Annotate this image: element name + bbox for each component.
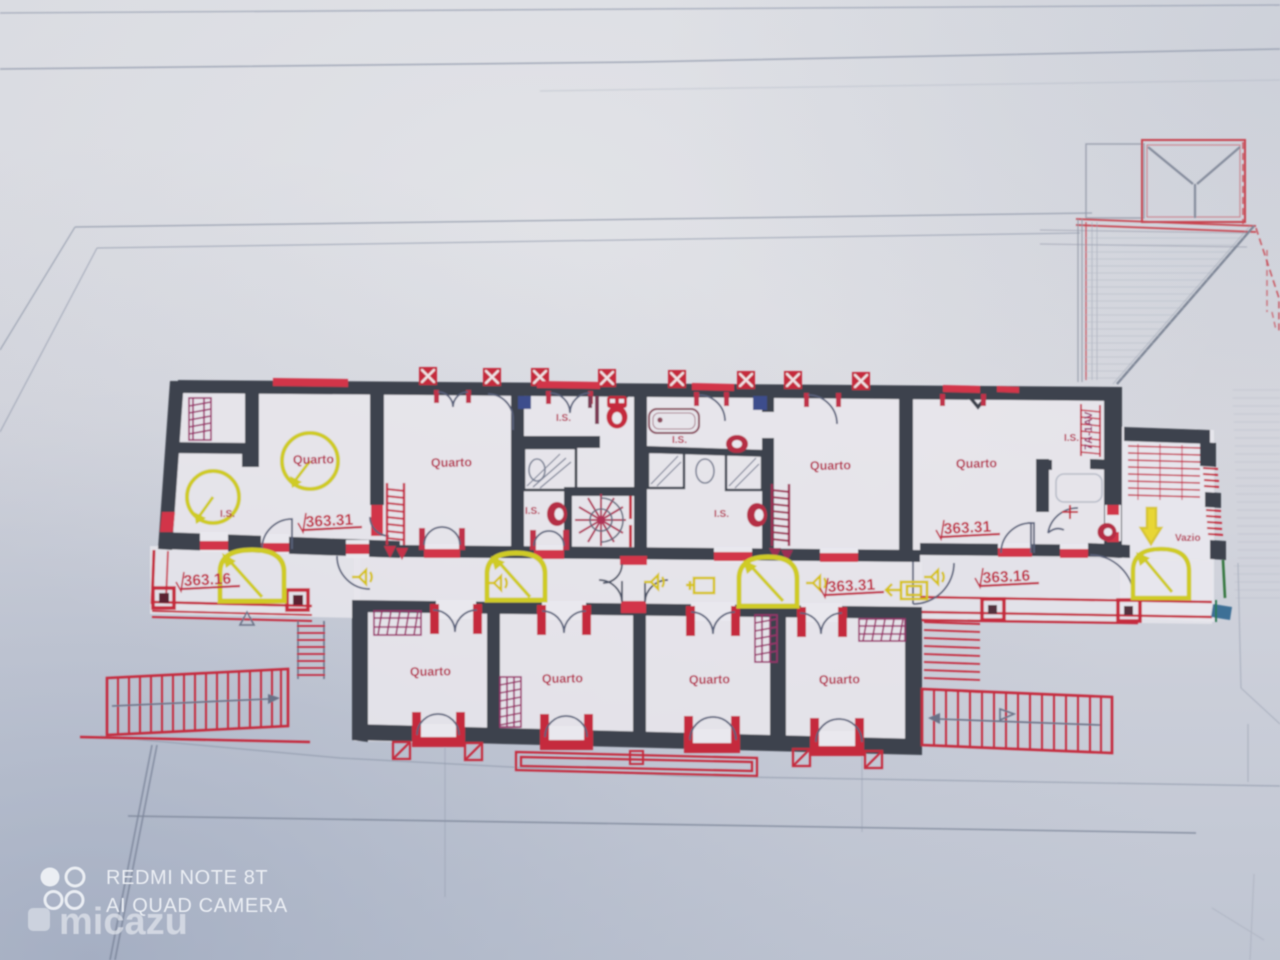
svg-text:micazu: micazu	[59, 901, 188, 943]
svg-text:Quarto: Quarto	[542, 671, 584, 686]
svg-text:I.S.: I.S.	[556, 413, 571, 424]
svg-text:Quarto: Quarto	[431, 455, 473, 470]
svg-text:Quarto: Quarto	[689, 672, 731, 687]
svg-text:Quarto: Quarto	[293, 452, 335, 467]
svg-text:I.S.: I.S.	[220, 509, 235, 520]
svg-text:Quarto: Quarto	[410, 664, 452, 679]
svg-text:I.S.: I.S.	[672, 435, 687, 446]
svg-text:REDMI NOTE 8T: REDMI NOTE 8T	[106, 867, 268, 889]
svg-text:I.S.: I.S.	[714, 509, 729, 520]
svg-text:Quarto: Quarto	[819, 672, 861, 687]
svg-text:Quarto: Quarto	[956, 456, 998, 471]
svg-text:Vazio: Vazio	[1175, 533, 1201, 544]
svg-text:7A-1AV: 7A-1AV	[1083, 411, 1095, 450]
svg-text:I.S.: I.S.	[1064, 433, 1079, 444]
svg-text:I.S.: I.S.	[525, 506, 540, 517]
svg-text:Quarto: Quarto	[810, 458, 852, 473]
